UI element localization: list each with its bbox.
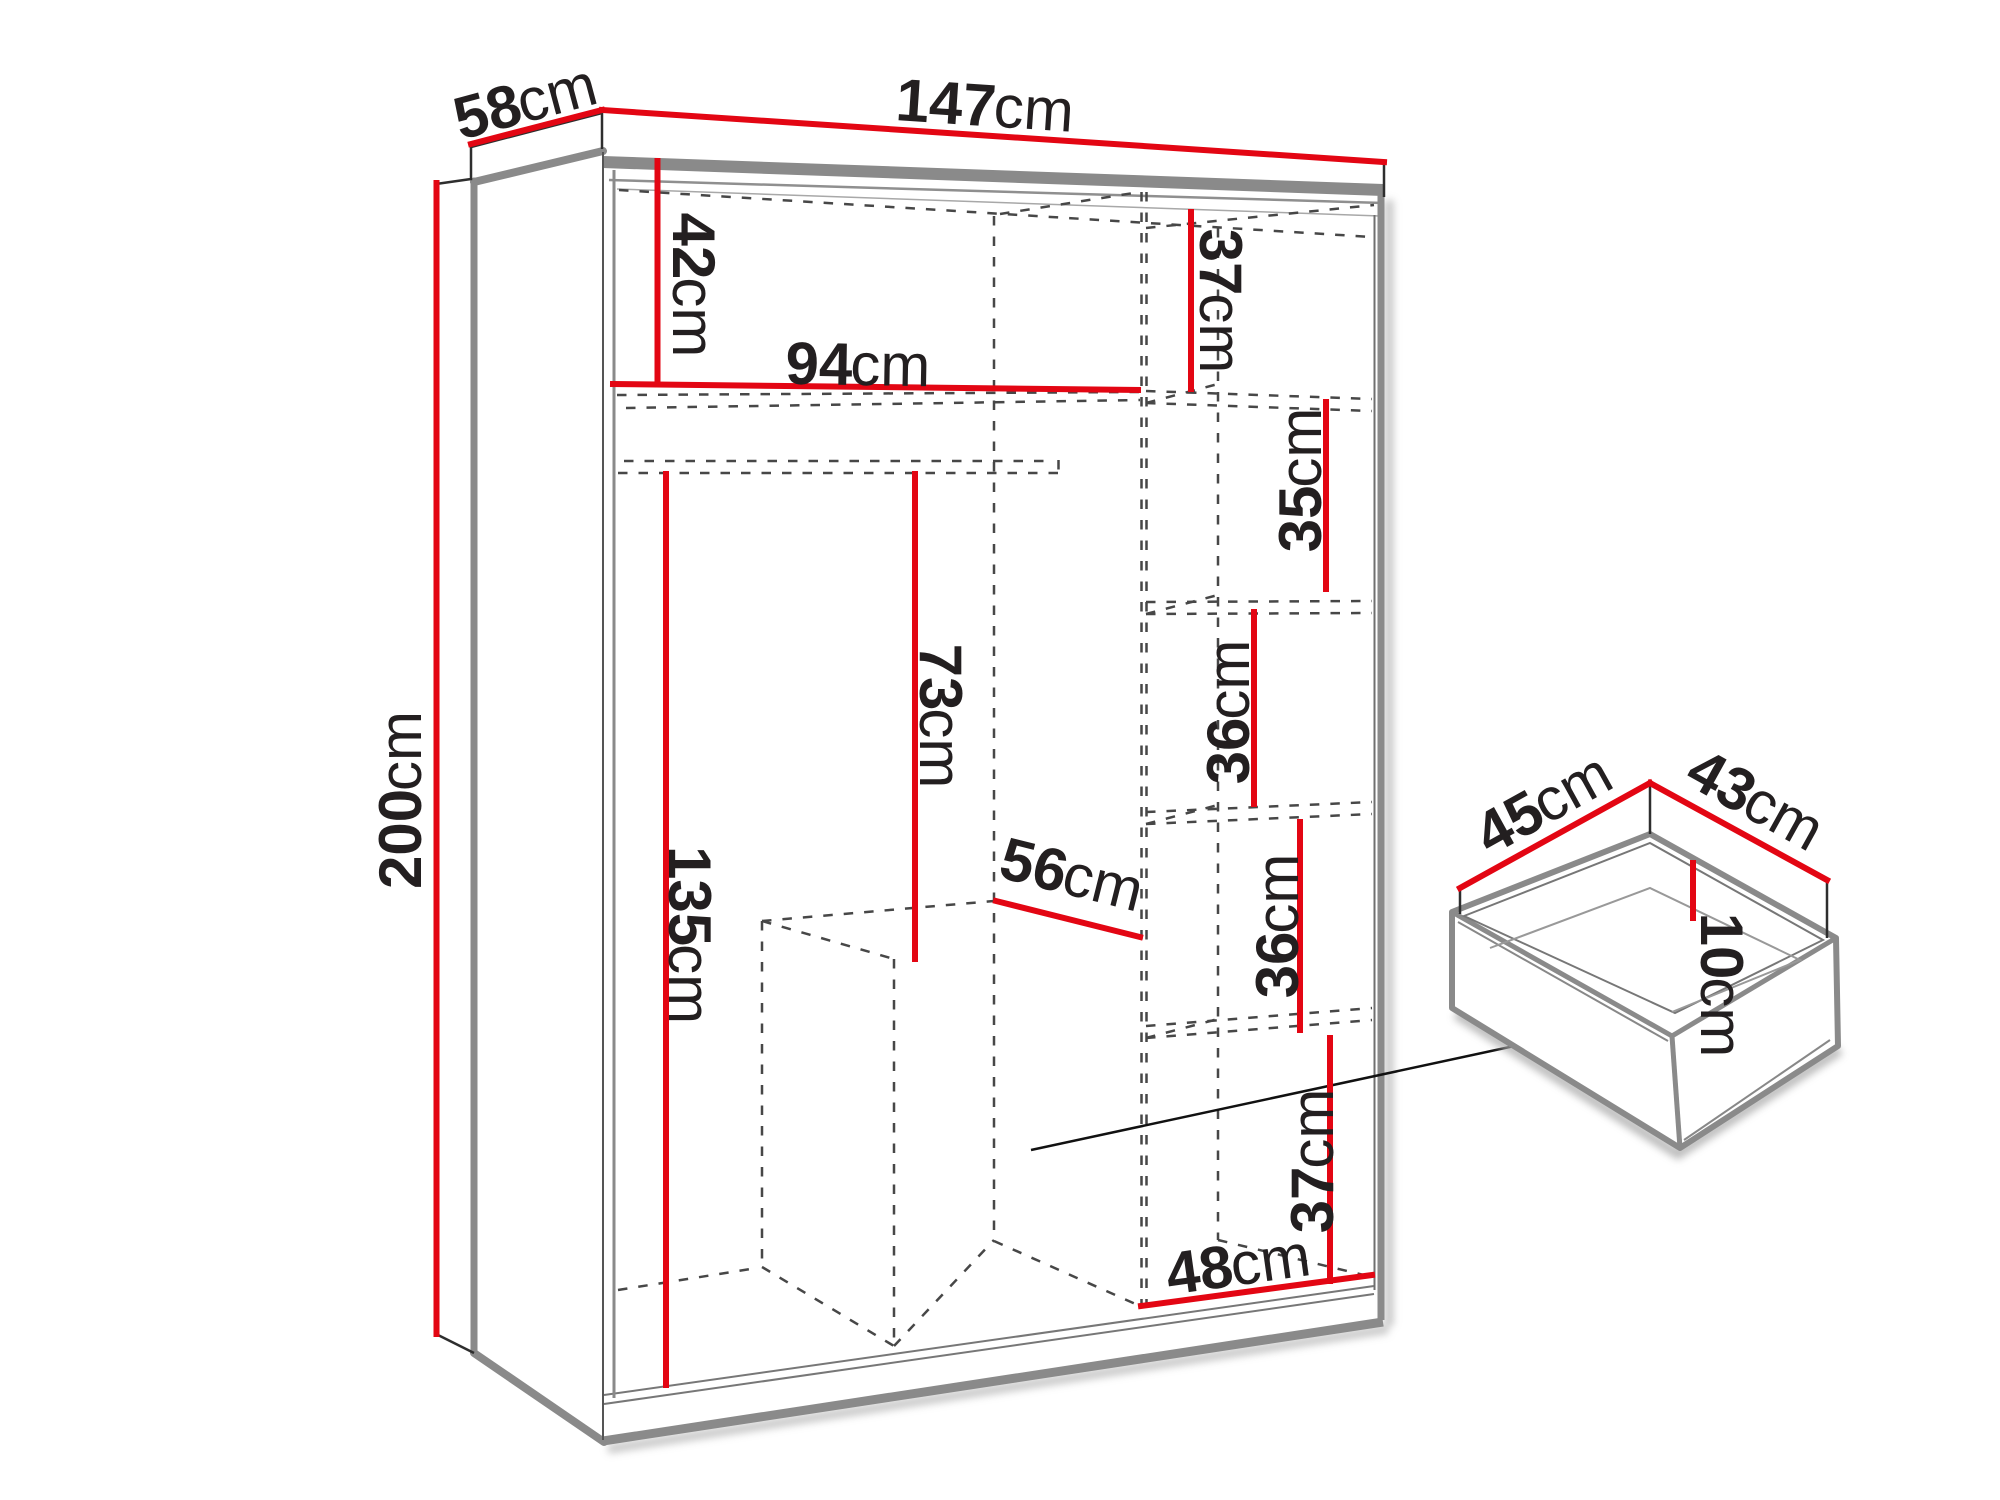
svg-text:56cm: 56cm — [994, 824, 1151, 924]
svg-text:73cm: 73cm — [907, 644, 974, 789]
svg-text:10cm: 10cm — [1688, 913, 1755, 1058]
svg-text:200cm: 200cm — [367, 711, 434, 889]
svg-text:147cm: 147cm — [894, 66, 1076, 145]
svg-text:94cm: 94cm — [785, 330, 931, 400]
svg-text:135cm: 135cm — [656, 846, 723, 1024]
svg-text:35cm: 35cm — [1267, 408, 1334, 553]
svg-text:58cm: 58cm — [447, 50, 604, 152]
svg-text:37cm: 37cm — [1279, 1089, 1346, 1234]
svg-text:43cm: 43cm — [1676, 735, 1835, 864]
svg-text:37cm: 37cm — [1187, 229, 1254, 374]
svg-text:48cm: 48cm — [1162, 1221, 1315, 1307]
svg-text:36cm: 36cm — [1244, 854, 1311, 999]
svg-text:42cm: 42cm — [660, 213, 727, 358]
svg-text:36cm: 36cm — [1195, 640, 1262, 785]
svg-text:45cm: 45cm — [1464, 739, 1623, 868]
